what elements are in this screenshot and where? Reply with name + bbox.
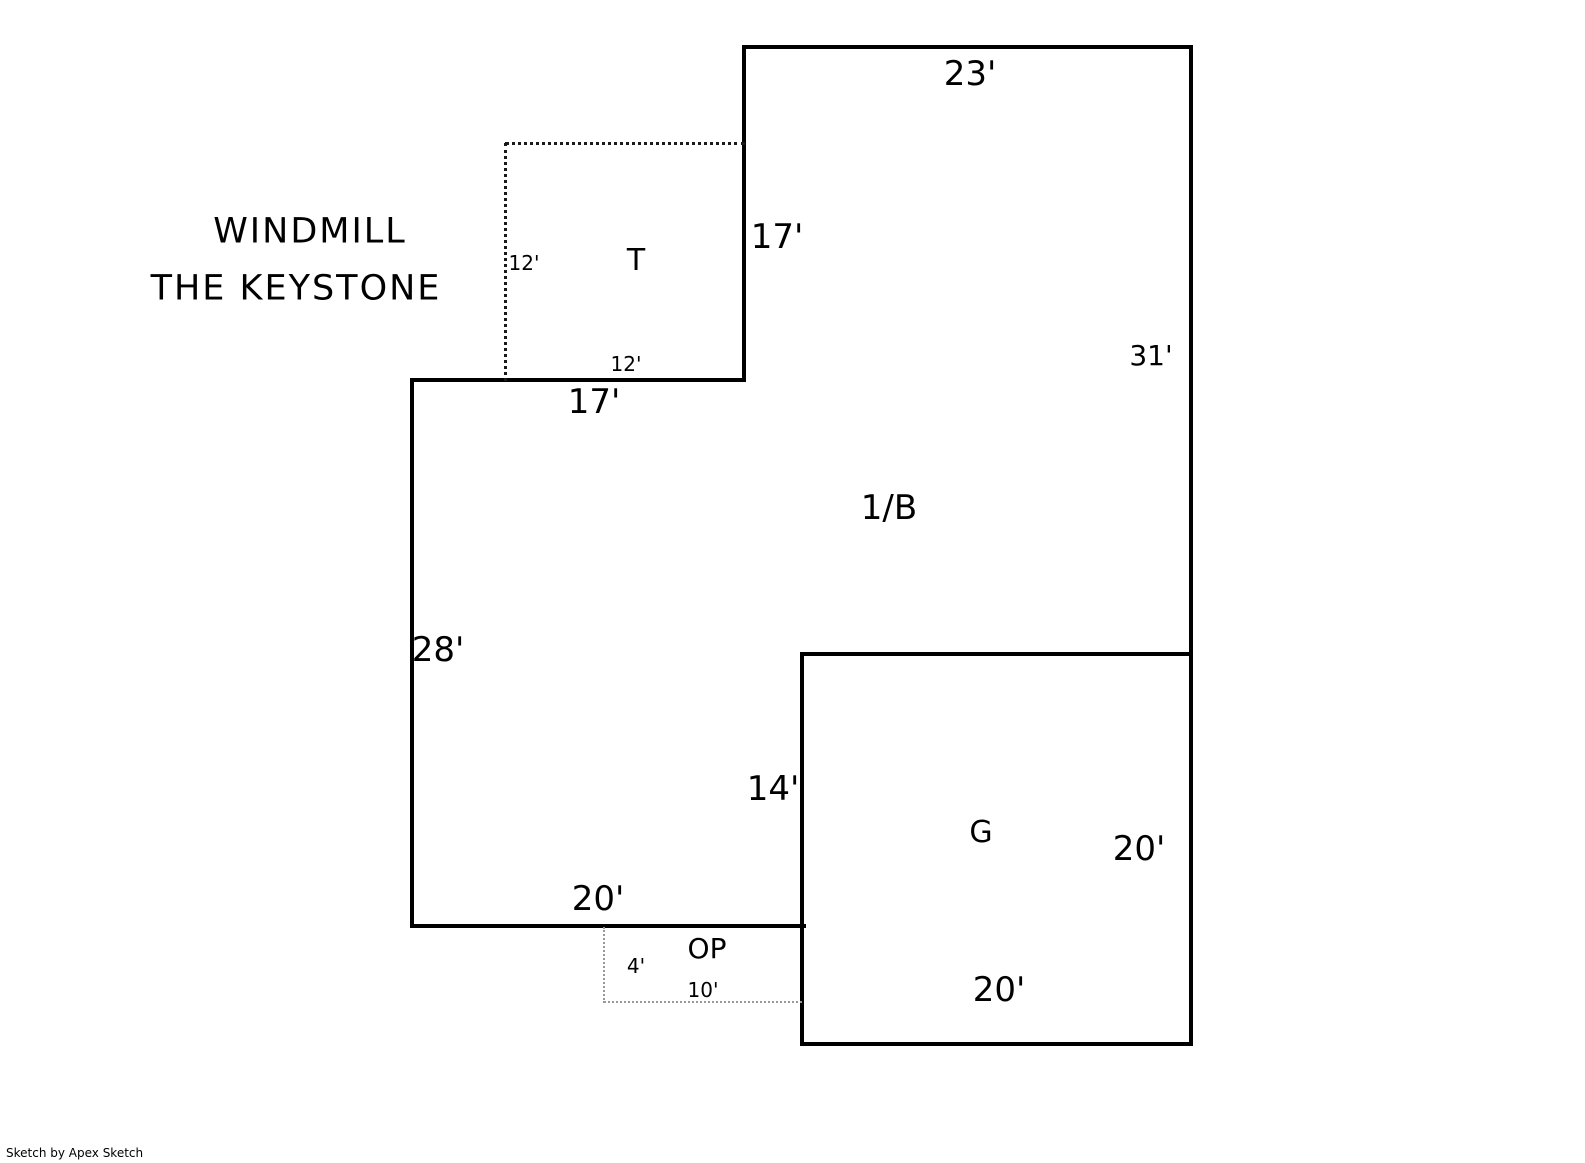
wall-main-top xyxy=(742,45,1193,49)
dim-garage-left: 14' xyxy=(747,772,800,806)
dim-upper-right-side: 17' xyxy=(751,220,804,254)
area-label-open-porch: OP xyxy=(688,935,727,963)
dim-main-right: 31' xyxy=(1129,342,1172,370)
wall-tower-right xyxy=(742,45,746,382)
dim-main-bottom: 20' xyxy=(572,882,625,916)
floor-plan-sketch: WINDMILL THE KEYSTONE 1/B T G OP 23' 17'… xyxy=(0,0,1585,1163)
area-label-garage: G xyxy=(969,818,992,848)
wall-garage-bottom xyxy=(800,1042,1193,1046)
dim-porch-left: 4' xyxy=(627,956,645,976)
wall-main-right xyxy=(1189,45,1193,1046)
wall-garage-left xyxy=(800,652,804,1046)
plan-title-line2: THE KEYSTONE xyxy=(151,272,442,307)
dotted-line-porch-left xyxy=(603,927,605,1003)
dotted-line-tower-top xyxy=(505,142,745,145)
wall-garage-top xyxy=(800,652,1193,656)
dim-tower-left: 12' xyxy=(509,253,540,273)
dotted-line-tower-left xyxy=(504,143,507,381)
dim-garage-right: 20' xyxy=(1113,832,1166,866)
area-label-main-floor: 1/B xyxy=(861,491,917,525)
dim-porch-bottom: 10' xyxy=(688,980,719,1000)
dim-main-top: 23' xyxy=(944,57,997,91)
dim-main-left: 28' xyxy=(412,633,465,667)
wall-main-bottom xyxy=(410,924,806,928)
area-label-tower: T xyxy=(627,246,645,276)
dim-garage-bottom: 20' xyxy=(973,973,1026,1007)
sketch-credit: Sketch by Apex Sketch xyxy=(6,1146,143,1160)
dim-step-bottom: 17' xyxy=(568,385,621,419)
plan-title-line1: WINDMILL xyxy=(213,215,407,250)
dim-tower-bottom: 12' xyxy=(611,354,642,374)
